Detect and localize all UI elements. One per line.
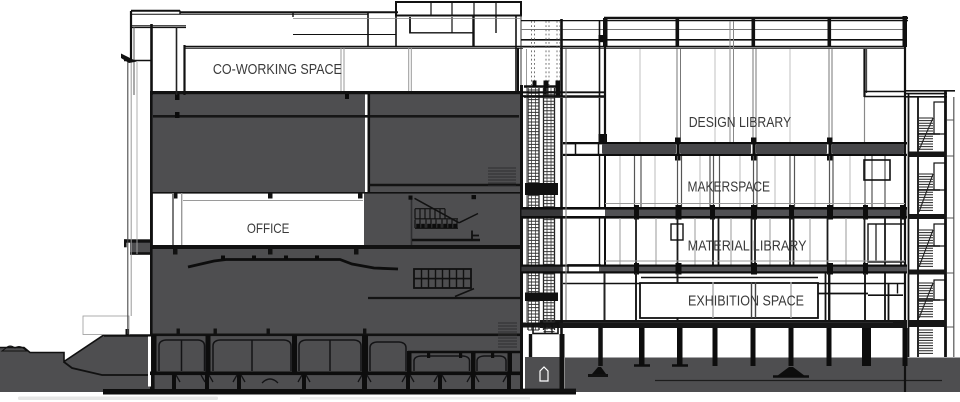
svg-text:MATERIAL LIBRARY: MATERIAL LIBRARY [688, 238, 807, 255]
svg-text:EXHIBITION SPACE: EXHIBITION SPACE [688, 293, 804, 310]
svg-text:OFFICE: OFFICE [247, 220, 290, 236]
svg-text:CO-WORKING SPACE: CO-WORKING SPACE [213, 61, 342, 78]
svg-text:MAKERSPACE: MAKERSPACE [688, 179, 771, 196]
svg-text:DESIGN LIBRARY: DESIGN LIBRARY [689, 114, 792, 131]
